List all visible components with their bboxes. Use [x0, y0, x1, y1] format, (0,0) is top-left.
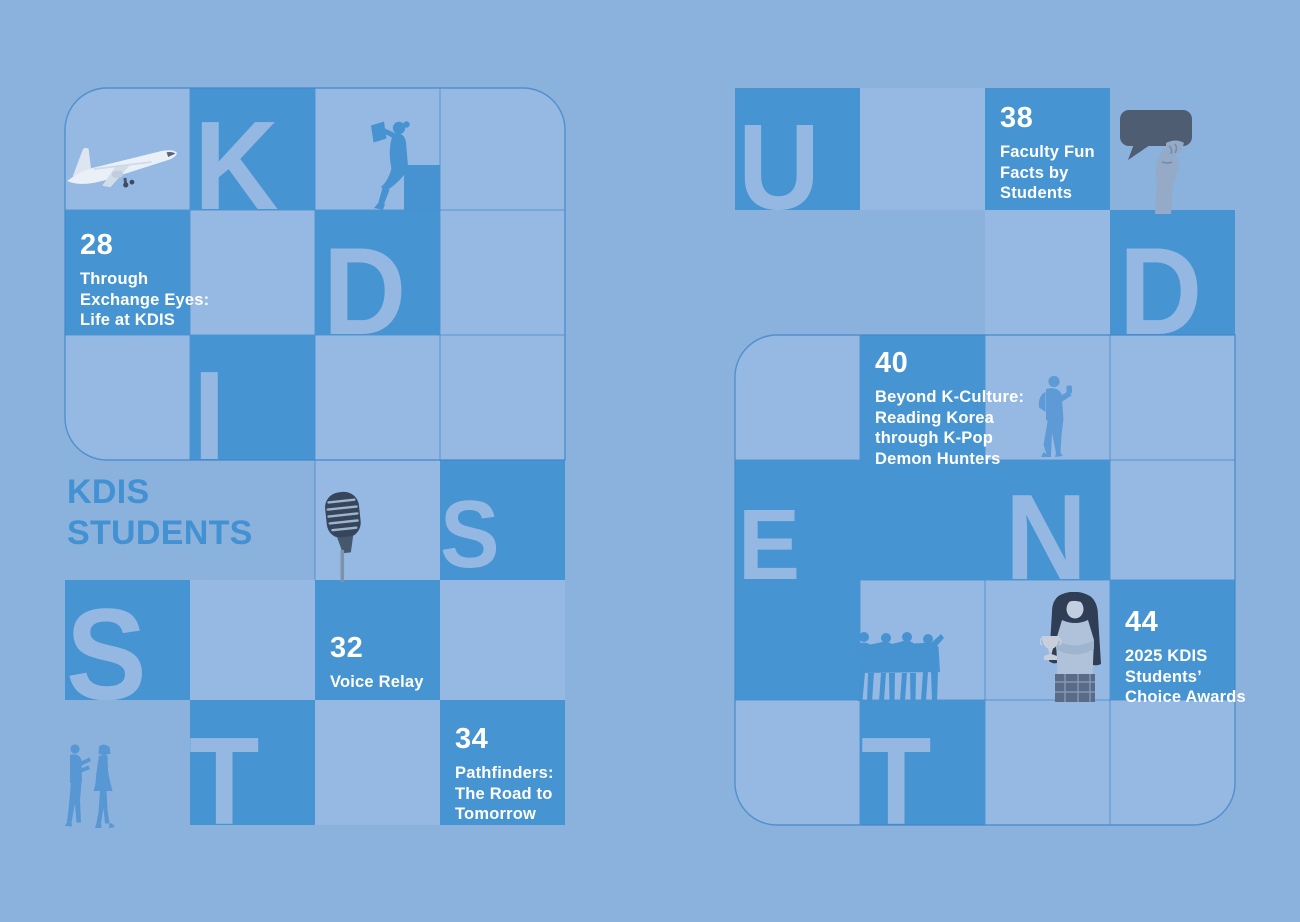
toc-entry-title-line: Beyond K-Culture:: [875, 387, 980, 408]
crossword-letter-D: D: [1119, 223, 1202, 361]
toc-entry-title-line: Tomorrow: [455, 804, 560, 825]
crossword-letter-T: T: [189, 713, 259, 851]
crossword-letter-D: D: [323, 223, 406, 361]
crossword-letter-U: U: [738, 98, 820, 235]
crossword-letter-T: T: [861, 713, 931, 851]
toc-entry-38[interactable]: 38Faculty FunFacts byStudents: [1000, 103, 1105, 204]
section-title-line1: KDIS: [67, 472, 253, 513]
crossword-letter-K: K: [194, 95, 279, 236]
section-title: KDIS STUDENTS: [67, 472, 253, 554]
crossword-letter-I: I: [193, 345, 226, 486]
toc-entry-title-line: Reading Korea: [875, 408, 980, 429]
toc-entry-page-number: 34: [455, 724, 560, 754]
toc-entry-page-number: 28: [80, 230, 185, 260]
toc-entry-title-line: Through: [80, 269, 185, 290]
speech-bubble-in-hand-photo: [1120, 110, 1202, 219]
toc-entry-28[interactable]: 28ThroughExchange Eyes:Life at KDIS: [80, 230, 185, 331]
reading-person-silhouette: [352, 118, 440, 218]
magazine-toc-spread: KDISSTUDENT KDIS STUDENTS: [0, 0, 1300, 922]
toc-entry-page-number: 32: [330, 633, 435, 663]
toc-entry-title-line: through K-Pop: [875, 428, 980, 449]
vintage-microphone-photo: [324, 490, 368, 587]
crossword-letter-S: S: [440, 480, 500, 588]
toc-entry-title-line: Students’: [1125, 667, 1230, 688]
section-title-line2: STUDENTS: [67, 513, 253, 554]
toc-entry-title-line: Choice Awards: [1125, 687, 1230, 708]
toc-entry-34[interactable]: 34Pathfinders:The Road toTomorrow: [455, 724, 560, 825]
group-of-friends-silhouette: [852, 630, 944, 709]
toc-entry-page-number: 44: [1125, 607, 1230, 637]
toc-entry-title-line: Pathfinders:: [455, 763, 560, 784]
toc-entry-page-number: 38: [1000, 103, 1105, 133]
toc-entry-title-line: Exchange Eyes:: [80, 290, 185, 311]
toc-entry-title-line: Demon Hunters: [875, 449, 980, 470]
crossword-letter-S: S: [66, 581, 147, 727]
standing-student-silhouette: [1032, 375, 1078, 464]
toc-entry-40[interactable]: 40Beyond K-Culture:Reading Koreathrough …: [875, 348, 980, 469]
girl-with-trophy-photo: [1040, 592, 1110, 702]
two-people-talking-silhouette: [62, 742, 120, 835]
toc-entry-title-line: Facts by: [1000, 163, 1105, 184]
toc-entry-title-line: The Road to: [455, 784, 560, 805]
toc-entry-title-line: Faculty Fun: [1000, 142, 1105, 163]
crossword-letter-E: E: [738, 490, 800, 601]
toc-entry-title-line: Students: [1000, 183, 1105, 204]
crossword-letter-N: N: [1005, 468, 1087, 605]
toc-entry-title-line: 2025 KDIS: [1125, 646, 1230, 667]
toc-entry-32[interactable]: 32Voice Relay: [330, 633, 435, 693]
toc-entry-44[interactable]: 442025 KDISStudents’Choice Awards: [1125, 607, 1230, 708]
toc-entry-title-line: Voice Relay: [330, 672, 435, 693]
toc-entry-title-line: Life at KDIS: [80, 310, 185, 331]
toc-entry-page-number: 40: [875, 348, 980, 378]
crossword-letters: KDISSTUDENT: [0, 0, 1300, 922]
